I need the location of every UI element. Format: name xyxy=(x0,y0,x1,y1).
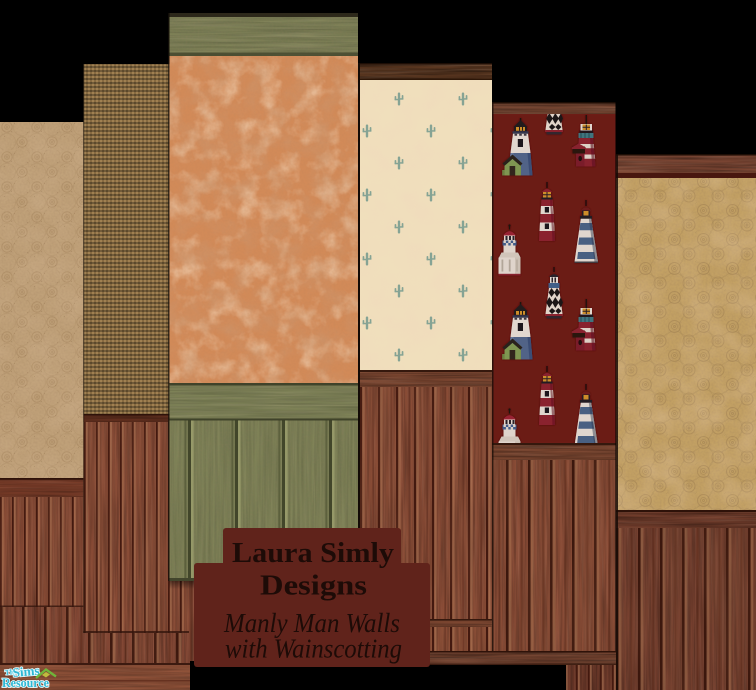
svg-text:Laura Simly: Laura Simly xyxy=(232,538,394,569)
svg-text:Designs: Designs xyxy=(260,571,367,602)
svg-text:with Wainscotting: with Wainscotting xyxy=(225,634,402,664)
svg-text:Resource: Resource xyxy=(2,675,49,690)
